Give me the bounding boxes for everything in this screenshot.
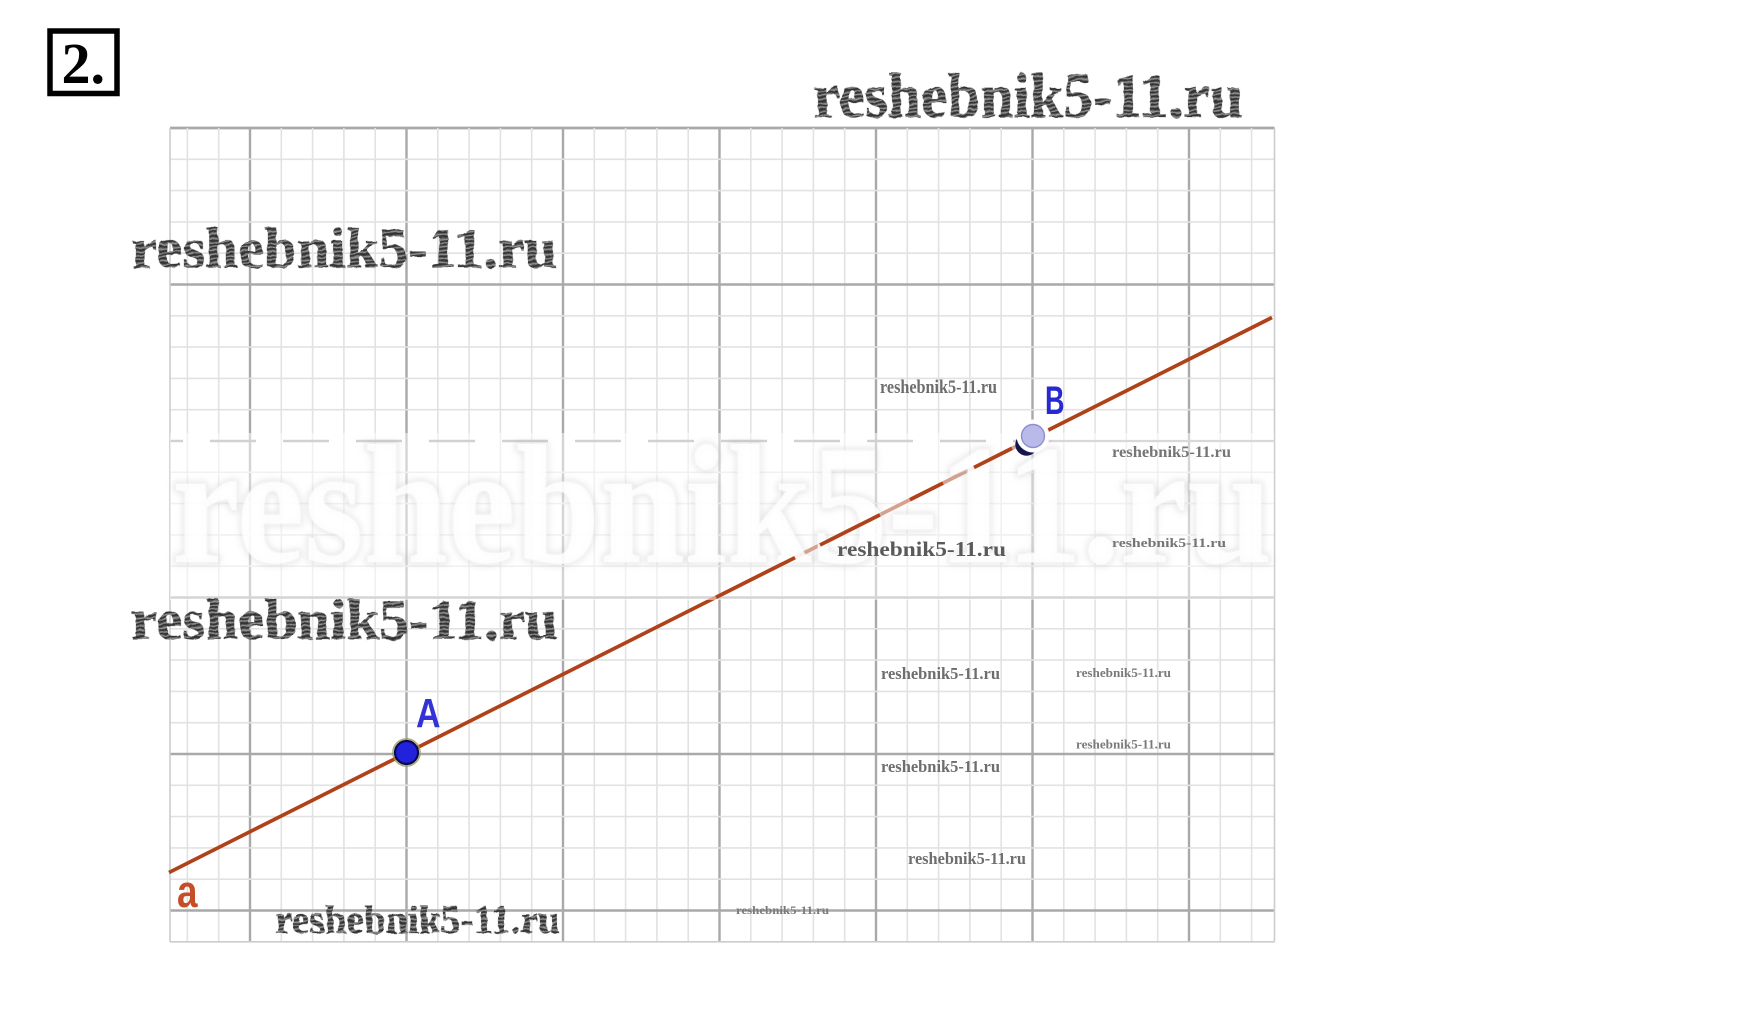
svg-text:reshebnik5-11.ru: reshebnik5-11.ru — [275, 897, 560, 942]
svg-text:reshebnik5-11.ru: reshebnik5-11.ru — [908, 849, 1026, 868]
svg-text:reshebnik5-11.ru: reshebnik5-11.ru — [881, 757, 1000, 776]
svg-text:reshebnik5-11.ru: reshebnik5-11.ru — [131, 589, 558, 652]
svg-text:reshebnik5-11.ru: reshebnik5-11.ru — [880, 377, 997, 398]
svg-text:reshebnik5-11.ru: reshebnik5-11.ru — [131, 218, 557, 281]
svg-text:reshebnik5-11.ru: reshebnik5-11.ru — [1076, 666, 1171, 680]
svg-text:2.: 2. — [62, 31, 106, 96]
svg-text:A: A — [416, 690, 441, 736]
svg-text:B: B — [1045, 379, 1065, 423]
svg-text:reshebnik5-11.ru: reshebnik5-11.ru — [736, 903, 829, 917]
svg-text:reshebnik5-11.ru: reshebnik5-11.ru — [881, 664, 1000, 683]
svg-text:reshebnik5-11.ru: reshebnik5-11.ru — [1112, 535, 1226, 550]
svg-text:reshebnik5-11.ru: reshebnik5-11.ru — [1112, 444, 1231, 461]
svg-text:reshebnik5-11.ru: reshebnik5-11.ru — [1076, 738, 1171, 752]
svg-text:reshebnik5-11.ru: reshebnik5-11.ru — [813, 60, 1243, 131]
svg-text:reshebnik5-11.ru: reshebnik5-11.ru — [837, 537, 1006, 561]
svg-text:reshebnik5-11.ru: reshebnik5-11.ru — [172, 411, 1272, 599]
svg-text:a: a — [177, 866, 198, 917]
